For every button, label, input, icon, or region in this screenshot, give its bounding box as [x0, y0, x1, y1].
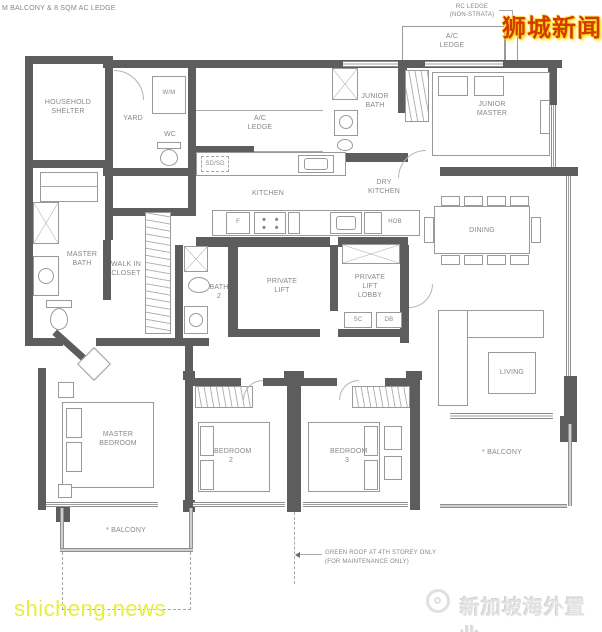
- balcony-railing: [189, 508, 193, 550]
- wall-segment: [287, 378, 301, 512]
- wardrobe-icon: [405, 70, 429, 122]
- shower-icon: [184, 246, 208, 272]
- chair-icon: [510, 255, 529, 265]
- room-label-private-lift-lobby: PRIVATE LIFT LOBBY: [353, 273, 387, 300]
- room-label-master-bedroom: MASTER BEDROOM: [97, 430, 139, 448]
- sofa-icon: [438, 310, 468, 406]
- wall-segment: [188, 60, 196, 176]
- leader-arrow-icon: [295, 552, 300, 558]
- window: [425, 61, 503, 67]
- chair-icon: [487, 255, 506, 265]
- wall-segment: [338, 329, 409, 337]
- sliding-door: [450, 413, 553, 419]
- pillow-icon: [364, 460, 378, 490]
- green-roof-dashed-line: [294, 512, 295, 584]
- fixture-label-db: DB: [376, 317, 402, 324]
- nightstand-icon: [384, 426, 402, 450]
- closet-icon: [342, 244, 400, 264]
- toilet-icon: [188, 277, 210, 293]
- door-arc: [243, 380, 263, 400]
- rc-ledge-note-line2: (NON-STRATA): [443, 12, 501, 19]
- counter-divider: [288, 212, 300, 234]
- fixture-label-sc: SC: [344, 317, 372, 324]
- wall-segment: [103, 168, 196, 176]
- chair-icon: [424, 217, 434, 243]
- fixture-label-fridge: F: [226, 219, 250, 226]
- leader-line: [300, 554, 322, 555]
- pillow-icon: [438, 76, 468, 96]
- watermark-top-right: 狮城新闻: [502, 8, 602, 43]
- shower-icon: [332, 68, 358, 100]
- wall-segment: [196, 237, 330, 247]
- door-arc: [114, 70, 144, 100]
- shower-icon: [33, 202, 59, 244]
- chair-icon: [464, 196, 483, 206]
- window: [46, 502, 158, 507]
- pillow-icon: [474, 76, 504, 96]
- toilet-icon: [50, 308, 68, 330]
- thin-line: [196, 110, 323, 111]
- wall-column: [406, 371, 422, 380]
- pillow-icon: [200, 460, 214, 490]
- room-label-private-lift: PRIVATE LIFT: [265, 277, 299, 295]
- wall-segment: [25, 56, 33, 166]
- window: [343, 61, 398, 67]
- room-label-dining: DINING: [457, 226, 507, 235]
- toilet-icon: [337, 139, 353, 151]
- room-label-wc: WC: [158, 130, 182, 139]
- watermark-bottom-right: 新加坡海外置业: [460, 591, 602, 632]
- window: [551, 105, 556, 167]
- room-label-ac-ledge-top: A/C LEDGE: [437, 32, 467, 50]
- pillow-icon: [66, 408, 82, 438]
- basin-icon: [38, 268, 54, 284]
- balcony-railing: [440, 504, 567, 508]
- wall-column: [38, 498, 46, 510]
- nightstand-icon: [384, 456, 402, 480]
- door-arc: [409, 284, 433, 308]
- room-label-kitchen: KITCHEN: [238, 189, 298, 198]
- wall-segment: [301, 378, 337, 386]
- globe-logo-icon: [434, 597, 441, 604]
- room-label-master-bath: MASTER BATH: [65, 250, 99, 268]
- chair-icon: [487, 196, 506, 206]
- sink-icon: [304, 158, 328, 170]
- room-label-ac-ledge-mid: A/C LEDGE: [245, 114, 275, 132]
- balcony-railing: [568, 424, 572, 506]
- nightstand-icon: [58, 484, 72, 498]
- chair-icon: [441, 255, 460, 265]
- floor-plan: M BALCONY & 8 SQM AC LEDGE RC LEDGE (NON…: [0, 0, 602, 632]
- chair-icon: [441, 196, 460, 206]
- room-label-dry-kitchen: DRY KITCHEN: [366, 178, 402, 196]
- wall-segment: [25, 56, 113, 64]
- fixture-label-sd: SD/SD: [200, 161, 230, 168]
- wall-segment: [105, 168, 113, 240]
- balcony-railing: [60, 508, 64, 550]
- appliance-box: [364, 212, 382, 234]
- wall-segment: [175, 245, 183, 338]
- nightstand-icon: [58, 382, 74, 398]
- room-label-balcony-right: * BALCONY: [467, 448, 537, 457]
- window: [566, 176, 571, 376]
- room-label-yard: YARD: [113, 114, 153, 123]
- wall-segment: [38, 368, 46, 508]
- wall-segment: [410, 378, 420, 510]
- wardrobe-icon: [352, 386, 410, 408]
- bench-icon: [540, 100, 550, 134]
- pillow-icon: [200, 426, 214, 456]
- fixture-label-hob: HOB: [382, 219, 408, 226]
- pillow-icon: [66, 442, 82, 472]
- toilet-icon: [46, 300, 72, 308]
- storage-cabinet: [40, 172, 98, 202]
- room-label-junior-bath: JUNIOR BATH: [360, 92, 390, 110]
- watermark-bottom-left: shicheng.news: [14, 596, 166, 622]
- wall-column: [183, 371, 195, 380]
- green-roof-note-line1: GREEN ROOF AT 4TH STOREY ONLY: [325, 550, 455, 557]
- room-label-walk-in-closet: WALK IN CLOSET: [107, 260, 145, 278]
- wall-segment: [25, 160, 113, 168]
- room-label-household-shelter: HOUSEHOLD SHELTER: [42, 98, 94, 116]
- wall-segment: [440, 167, 578, 176]
- green-roof-note-line2: (FOR MAINTENANCE ONLY): [325, 559, 455, 566]
- toilet-icon: [157, 142, 181, 149]
- hob-icon: [254, 212, 286, 234]
- room-label-bedroom-2: BEDROOM 2: [214, 447, 248, 465]
- sink-icon: [336, 216, 356, 230]
- room-label-bath-2: BATH 2: [208, 283, 230, 301]
- room-label-balcony-bottom: * BALCONY: [91, 526, 161, 535]
- wardrobe-icon: [145, 212, 171, 334]
- basin-icon: [189, 313, 203, 327]
- thin-line: [40, 186, 98, 187]
- wall-segment: [228, 329, 320, 337]
- rc-ledge-note-line1: RC LEDGE: [443, 4, 501, 11]
- wall-segment: [105, 56, 113, 168]
- fixture-label-wm: W/M: [152, 90, 186, 97]
- top-left-note: M BALCONY & 8 SQM AC LEDGE: [2, 4, 202, 13]
- room-label-junior-master: JUNIOR MASTER: [474, 100, 510, 118]
- room-label-bedroom-3: BEDROOM 3: [330, 447, 364, 465]
- toilet-icon: [160, 149, 178, 166]
- window: [193, 502, 285, 507]
- wall-segment: [25, 168, 33, 345]
- chair-icon: [531, 217, 541, 243]
- basin-icon: [339, 115, 353, 129]
- wall-segment: [185, 378, 193, 508]
- wall-segment: [330, 245, 338, 311]
- wall-column: [284, 371, 304, 380]
- door-arc: [339, 380, 359, 400]
- room-label-living: LIVING: [492, 368, 532, 377]
- chair-icon: [464, 255, 483, 265]
- window: [303, 502, 408, 507]
- chair-icon: [510, 196, 529, 206]
